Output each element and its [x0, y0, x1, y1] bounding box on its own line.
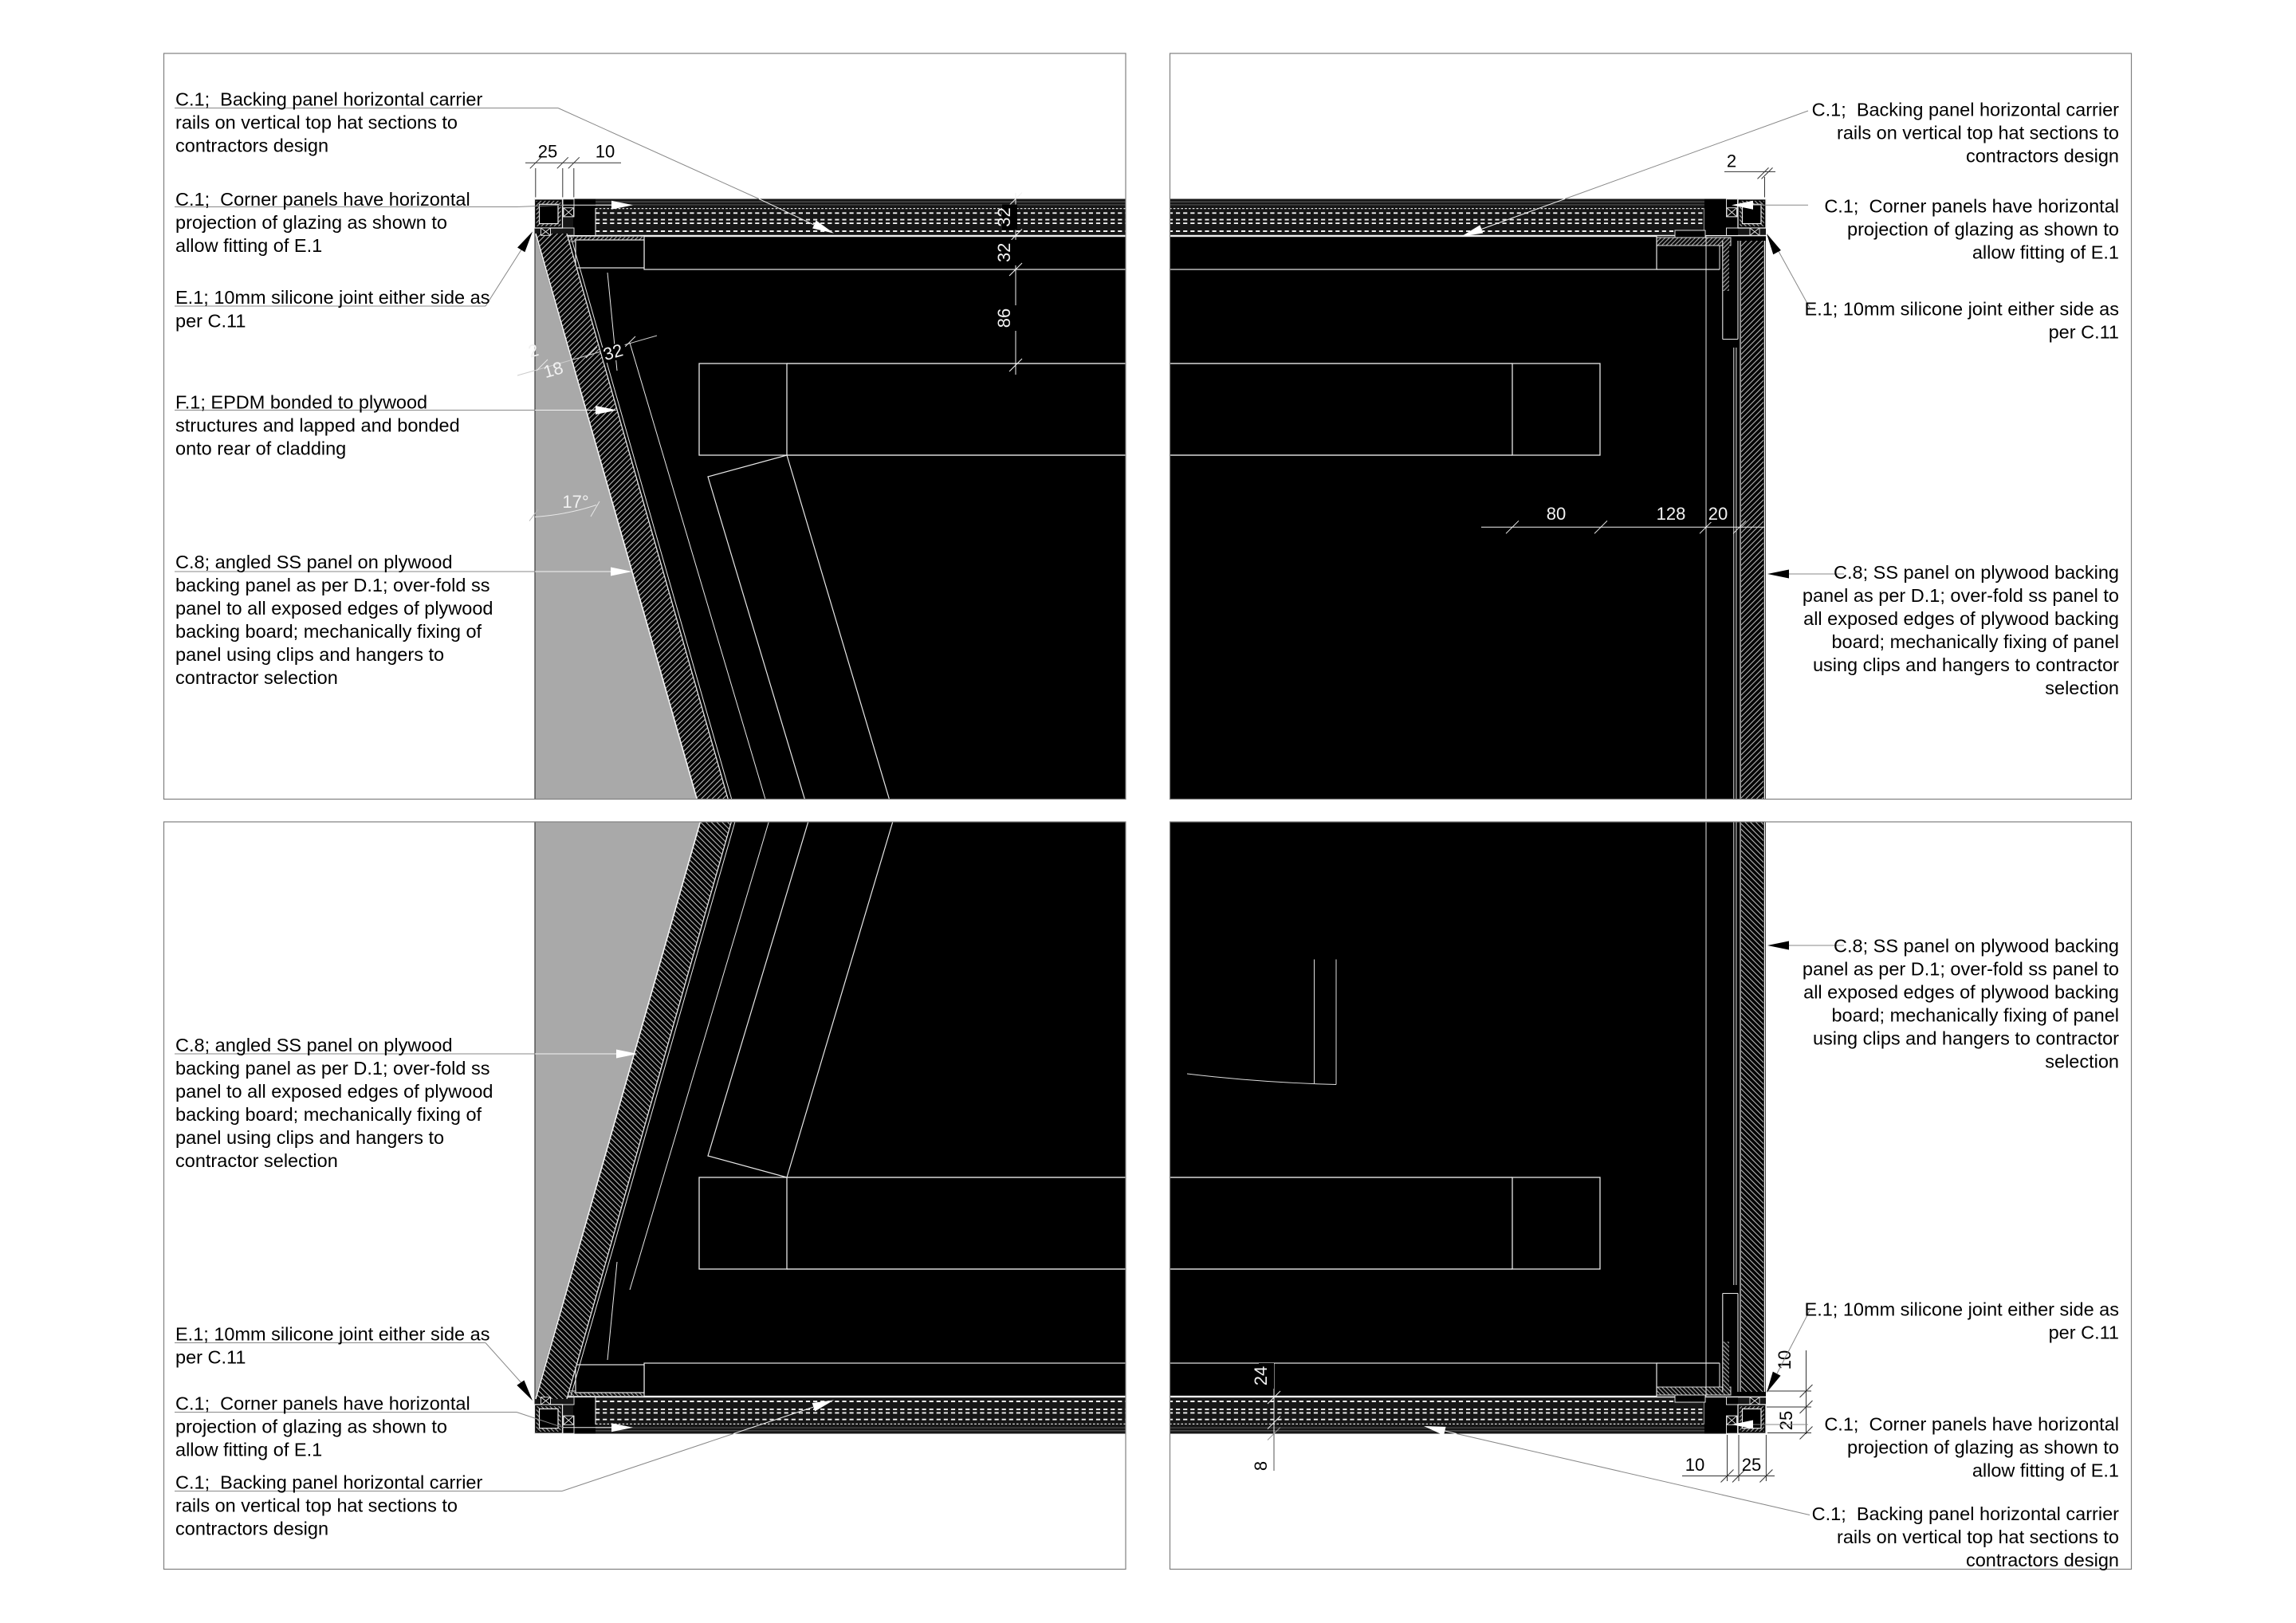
- svg-text:allow fitting of E.1: allow fitting of E.1: [175, 235, 322, 256]
- svg-text:E.1; 10mm silicone joint eithe: E.1; 10mm silicone joint either side as: [1805, 1299, 2119, 1320]
- svg-text:per C.11: per C.11: [175, 1347, 246, 1368]
- svg-text:C.1; Backing panel horizontal: C.1; Backing panel horizontal carrier: [175, 89, 483, 110]
- svg-text:17°: 17°: [562, 492, 588, 512]
- svg-text:32: 32: [994, 207, 1014, 226]
- svg-text:E.1; 10mm silicone joint eithe: E.1; 10mm silicone joint either side as: [1805, 299, 2119, 320]
- svg-text:32: 32: [994, 243, 1014, 262]
- svg-text:25: 25: [1742, 1455, 1761, 1475]
- svg-text:rails on vertical top hat sect: rails on vertical top hat sections to: [1837, 1527, 2119, 1547]
- svg-text:contractors design: contractors design: [175, 1519, 328, 1539]
- svg-text:C.1; Backing panel horizontal: C.1; Backing panel horizontal carrier: [175, 1472, 483, 1493]
- svg-text:C.8; SS panel on plywood backi: C.8; SS panel on plywood backing: [1834, 936, 2119, 957]
- svg-text:20: 20: [1708, 504, 1728, 524]
- svg-text:rails on vertical top hat sect: rails on vertical top hat sections to: [1837, 123, 2119, 143]
- svg-text:C.8; SS panel on plywood backi: C.8; SS panel on plywood backing: [1834, 562, 2119, 583]
- svg-text:backing panel as per D.1; over: backing panel as per D.1; over-fold ss: [175, 1058, 490, 1079]
- svg-text:8: 8: [1251, 1461, 1271, 1471]
- svg-text:rails on vertical top hat sect: rails on vertical top hat sections to: [175, 1495, 458, 1516]
- svg-text:contractors design: contractors design: [1966, 146, 2119, 167]
- svg-text:10: 10: [596, 142, 615, 162]
- svg-text:projection of glazing as shown: projection of glazing as shown to: [175, 212, 447, 233]
- svg-text:C.8; angled SS panel on plywoo: C.8; angled SS panel on plywood: [175, 552, 453, 572]
- svg-text:C.1; Backing panel horizontal: C.1; Backing panel horizontal carrier: [1812, 1503, 2120, 1524]
- svg-text:per C.11: per C.11: [2049, 322, 2119, 343]
- svg-text:128: 128: [1657, 504, 1686, 524]
- svg-text:allow fitting of E.1: allow fitting of E.1: [1972, 1460, 2119, 1481]
- svg-text:selection: selection: [2045, 678, 2119, 698]
- svg-text:panel using clips and hangers: panel using clips and hangers to: [175, 644, 444, 665]
- svg-text:86: 86: [994, 308, 1014, 328]
- svg-text:C.1; Corner panels have horiz: C.1; Corner panels have horizontal: [1824, 1414, 2119, 1435]
- svg-text:per C.11: per C.11: [175, 311, 246, 332]
- svg-text:contractors design: contractors design: [1966, 1550, 2119, 1570]
- svg-text:panel as per D.1; over-fold ss: panel as per D.1; over-fold ss panel to: [1803, 585, 2119, 606]
- svg-text:selection: selection: [2045, 1051, 2119, 1072]
- svg-text:all exposed edges of plywood b: all exposed edges of plywood backing: [1803, 982, 2119, 1003]
- svg-text:onto rear of cladding: onto rear of cladding: [175, 438, 346, 459]
- svg-text:using clips and hangers to con: using clips and hangers to contractor: [1813, 654, 2119, 675]
- svg-text:contractor selection: contractor selection: [175, 667, 338, 688]
- svg-text:C.1; Corner panels have horiz: C.1; Corner panels have horizontal: [175, 1393, 470, 1414]
- svg-text:25: 25: [1776, 1411, 1796, 1430]
- svg-text:10: 10: [1775, 1350, 1795, 1370]
- svg-text:per C.11: per C.11: [2049, 1322, 2119, 1343]
- svg-text:contractors design: contractors design: [175, 136, 328, 156]
- svg-text:using clips and hangers to con: using clips and hangers to contractor: [1813, 1028, 2119, 1049]
- svg-text:panel as per D.1; over-fold ss: panel as per D.1; over-fold ss panel to: [1803, 959, 2119, 980]
- svg-text:board; mechanically fixing of: board; mechanically fixing of panel: [1831, 1005, 2119, 1026]
- svg-text:backing board; mechanically fi: backing board; mechanically fixing of: [175, 621, 482, 642]
- svg-text:panel to all exposed edges of: panel to all exposed edges of plywood: [175, 1081, 493, 1102]
- svg-text:F.1; EPDM bonded to plywood: F.1; EPDM bonded to plywood: [175, 392, 427, 413]
- svg-text:10: 10: [1685, 1455, 1704, 1475]
- svg-text:80: 80: [1547, 504, 1566, 524]
- svg-text:backing panel as per D.1; over: backing panel as per D.1; over-fold ss: [175, 575, 490, 595]
- svg-text:all exposed edges of plywood b: all exposed edges of plywood backing: [1803, 608, 2119, 629]
- svg-text:board; mechanically fixing of: board; mechanically fixing of panel: [1831, 631, 2119, 652]
- svg-text:25: 25: [538, 142, 557, 162]
- svg-text:C.1; Corner panels have horiz: C.1; Corner panels have horizontal: [175, 189, 470, 210]
- svg-text:rails on vertical top hat sect: rails on vertical top hat sections to: [175, 112, 458, 133]
- svg-text:C.1; Corner panels have horiz: C.1; Corner panels have horizontal: [1824, 196, 2119, 217]
- svg-text:structures and lapped and bond: structures and lapped and bonded: [175, 415, 460, 436]
- svg-text:allow fitting of E.1: allow fitting of E.1: [175, 1440, 322, 1460]
- svg-text:contractor selection: contractor selection: [175, 1150, 338, 1171]
- svg-text:C.1; Backing panel horizontal: C.1; Backing panel horizontal carrier: [1812, 100, 2120, 120]
- svg-text:E.1; 10mm silicone joint eithe: E.1; 10mm silicone joint either side as: [175, 1324, 489, 1345]
- svg-text:projection of glazing as shown: projection of glazing as shown to: [1847, 1437, 2119, 1458]
- svg-text:projection of glazing as shown: projection of glazing as shown to: [175, 1417, 447, 1437]
- svg-text:panel using clips and hangers: panel using clips and hangers to: [175, 1127, 444, 1148]
- svg-text:2: 2: [1727, 151, 1736, 171]
- svg-text:24: 24: [1251, 1366, 1271, 1385]
- svg-text:allow fitting of E.1: allow fitting of E.1: [1972, 242, 2119, 263]
- svg-text:E.1; 10mm silicone joint eithe: E.1; 10mm silicone joint either side as: [175, 287, 489, 308]
- svg-text:C.8; angled SS panel on plywoo: C.8; angled SS panel on plywood: [175, 1035, 453, 1055]
- svg-text:projection of glazing as shown: projection of glazing as shown to: [1847, 219, 2119, 240]
- svg-text:panel to all exposed edges of: panel to all exposed edges of plywood: [175, 598, 493, 619]
- svg-text:backing board; mechanically fi: backing board; mechanically fixing of: [175, 1104, 482, 1125]
